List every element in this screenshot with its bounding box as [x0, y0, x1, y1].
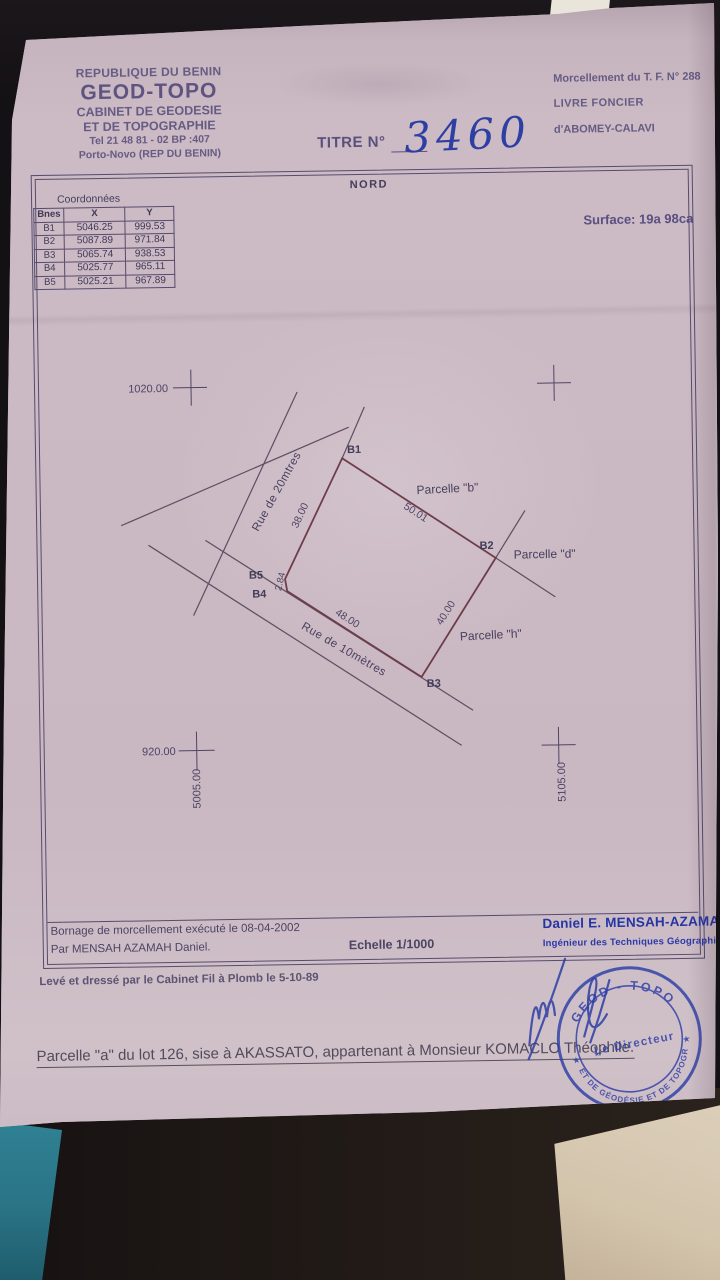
- engineer-name-stamp: Daniel E. MENSAH-AZAMAH: [542, 913, 720, 931]
- survey-plan-paper: REPUBLIQUE DU BENIN GEOD-TOPO CABINET DE…: [0, 0, 720, 1280]
- cell-id: B3: [34, 249, 64, 263]
- cell-x: 5046.25: [64, 221, 125, 235]
- title-label: TITRE N°: [317, 134, 386, 152]
- col-x: X: [64, 207, 125, 221]
- document-content: REPUBLIQUE DU BENIN GEOD-TOPO CABINET DE…: [0, 0, 720, 1280]
- signature-stroke: [529, 1001, 556, 1046]
- cell-id: B1: [34, 222, 64, 236]
- stamp-arc-top-text: GEOD - TOPO: [563, 969, 680, 1027]
- stamp-star-right: ★: [681, 1033, 691, 1044]
- signature-stroke: [589, 980, 610, 1042]
- cell-y: 938.53: [126, 247, 175, 261]
- cell-id: B2: [34, 235, 64, 249]
- cell-id: B4: [35, 262, 65, 276]
- table-row: B5 5025.21 967.89: [35, 274, 175, 290]
- cell-y: 971.84: [125, 233, 174, 247]
- surface-label: Surface: 19a 98ca: [583, 211, 693, 228]
- footer-echelle: Echelle 1/1000: [349, 937, 435, 952]
- cell-y: 999.53: [125, 220, 174, 234]
- cell-y: 967.89: [126, 274, 175, 288]
- cell-x: 5025.77: [65, 261, 126, 275]
- cell-x: 5087.89: [64, 234, 125, 248]
- cell-x: 5025.21: [65, 275, 126, 289]
- letterhead-block: REPUBLIQUE DU BENIN GEOD-TOPO CABINET DE…: [46, 64, 252, 163]
- col-y: Y: [125, 206, 174, 220]
- coordinates-table-title: Coordonnées: [33, 192, 174, 208]
- letterhead-company-name: GEOD-TOPO: [46, 79, 251, 106]
- letterhead-city: Porto-Novo (REP DU BENIN): [47, 146, 252, 163]
- header-livre-foncier: LIVRE FONCIER: [554, 96, 644, 109]
- photo-of-survey-document: REPUBLIQUE DU BENIN GEOD-TOPO CABINET DE…: [0, 0, 720, 1280]
- parcel-statement: Parcelle "a" du lot 126, sise à AKASSATO…: [36, 1039, 634, 1068]
- header-commune: d'ABOMEY-CALAVI: [554, 122, 655, 136]
- footer-par: Par MENSAH AZAMAH Daniel.: [51, 941, 211, 956]
- cell-x: 5065.74: [65, 248, 126, 262]
- signature-stroke: [583, 978, 607, 1036]
- title-number-handwritten: 3460: [403, 107, 532, 162]
- coordinates-table: Coordonnées Bnes X Y B1 5046.25 999.53 B…: [33, 192, 176, 290]
- cell-id: B5: [35, 276, 65, 290]
- cell-y: 965.11: [126, 260, 175, 274]
- header-morcellement: Morcellement du T. F. N° 288: [553, 71, 701, 85]
- survey-note: Levé et dressé par le Cabinet Fil à Plom…: [39, 972, 318, 988]
- col-bornes: Bnes: [34, 208, 64, 222]
